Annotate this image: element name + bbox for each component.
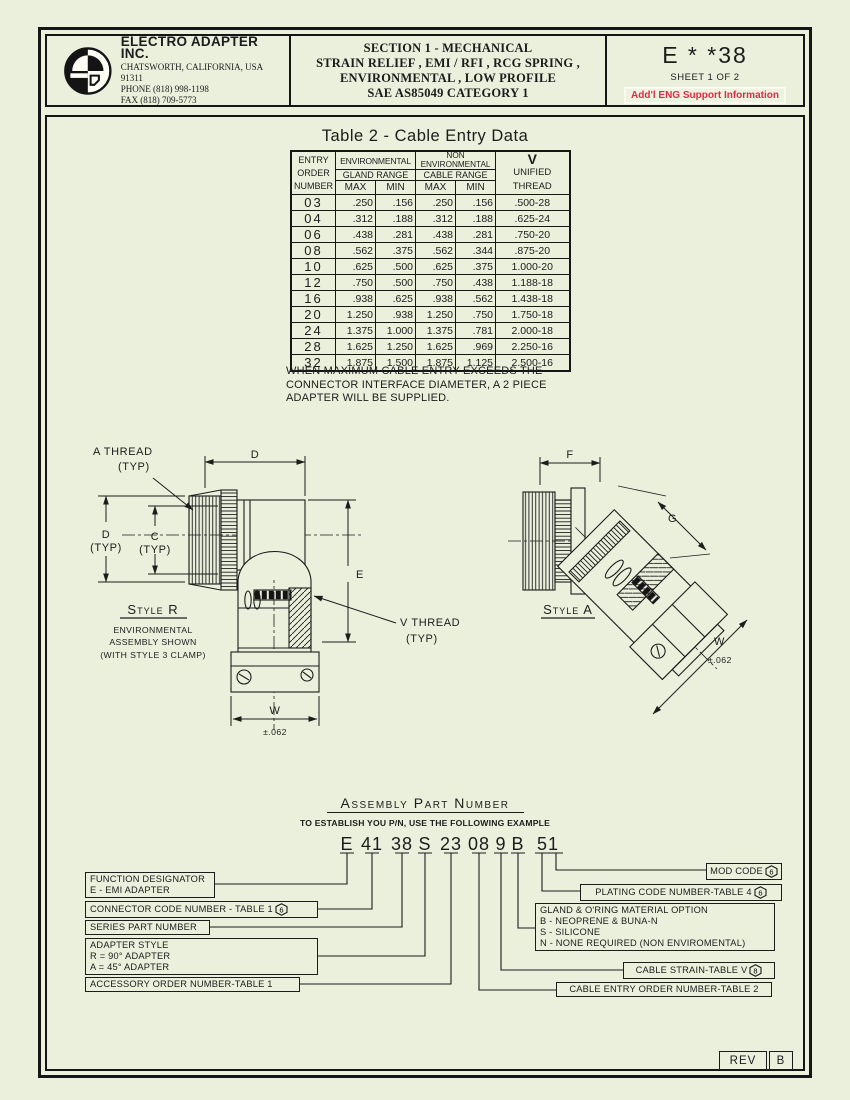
flag-note-icon: 6 (275, 903, 288, 916)
svg-text:±.062: ±.062 (708, 655, 732, 665)
col-header-gland-range: GLAND RANGE (336, 170, 416, 181)
dim-w: W (270, 705, 281, 717)
col-header-entry: ENTRY ORDER NUMBER (291, 151, 336, 195)
col-header-v-thread: V UNIFIED THREAD (496, 151, 570, 195)
table-cell-entry: 16 (291, 291, 336, 307)
doc-id-block: E * *38 SHEET 1 OF 2 Add'l ENG Support I… (607, 36, 803, 105)
table-cell-cmax: 1.625 (416, 339, 456, 355)
svg-text:6: 6 (758, 888, 762, 897)
section-title-line: STRAIN RELIEF , EMI / RFI , RCG SPRING , (316, 56, 580, 71)
table-cell-thread: 1.000-20 (496, 259, 570, 275)
company-phone: PHONE (818) 998-1198 (121, 84, 283, 95)
table-cell-cmin: .438 (456, 275, 496, 291)
callout-cable-entry-order: CABLE ENTRY ORDER NUMBER-TABLE 2 (556, 982, 772, 997)
svg-text:±.062: ±.062 (263, 727, 287, 737)
table-cell-gmin: .625 (376, 291, 416, 307)
table-cell-cmax: .562 (416, 243, 456, 259)
table-cell-thread: 1.438-18 (496, 291, 570, 307)
callout-cable-strain: CABLE STRAIN-TABLE V 8 (623, 962, 775, 979)
table-row: 241.3751.0001.375.7812.000-18 (291, 323, 570, 339)
svg-text:ASSEMBLY SHOWN: ASSEMBLY SHOWN (109, 637, 196, 647)
table-row: 08.562.375.562.344.875-20 (291, 243, 570, 259)
rev-label: REV (719, 1051, 767, 1070)
drawing-sheet-body: Table 2 - Cable Entry Data ENTRY ORDER N… (45, 115, 805, 1071)
doc-code: E * *38 (662, 42, 748, 69)
revision-block: REV B (719, 1051, 793, 1070)
table-cell-entry: 08 (291, 243, 336, 259)
flag-note-icon: 6 (754, 886, 767, 899)
a-thread-label: A THREAD (93, 446, 153, 458)
table-cell-thread: 1.750-18 (496, 307, 570, 323)
datasheet-page: ELECTRO ADAPTER INC. CHATSWORTH, CALIFOR… (0, 0, 850, 1100)
svg-text:6: 6 (279, 905, 283, 914)
table-cell-entry: 28 (291, 339, 336, 355)
callout-series-part-number: SERIES PART NUMBER (85, 920, 210, 935)
table-title: Table 2 - Cable Entry Data (47, 127, 803, 146)
svg-text:(WITH STYLE 3 CLAMP): (WITH STYLE 3 CLAMP) (100, 650, 206, 660)
company-block: ELECTRO ADAPTER INC. CHATSWORTH, CALIFOR… (47, 36, 289, 105)
table-cell-entry: 03 (291, 195, 336, 211)
callout-gland-oring-option: GLAND & O'RING MATERIAL OPTION B - NEOPR… (535, 903, 775, 951)
company-address: CHATSWORTH, CALIFORNIA, USA 91311 (121, 62, 283, 84)
flag-note-icon: 6 (765, 865, 778, 878)
table-cell-gmax: .312 (336, 211, 376, 227)
eng-support-link[interactable]: Add'l ENG Support Information (624, 87, 786, 104)
table-cell-gmax: .750 (336, 275, 376, 291)
table-cell-gmax: .250 (336, 195, 376, 211)
svg-text:(TYP): (TYP) (90, 542, 122, 554)
connector-drawings: A THREAD (TYP) D D (TYP) C (TYP) E V THR… (58, 430, 803, 775)
table-cell-gmax: .562 (336, 243, 376, 259)
table-note: WHEN MAXIMUM CABLE ENTRY EXCEEDS THE CON… (286, 365, 547, 406)
table-row: 10.625.500.625.3751.000-20 (291, 259, 570, 275)
table-row: 04.312.188.312.188.625-24 (291, 211, 570, 227)
table-cell-entry: 20 (291, 307, 336, 323)
callout-adapter-style: ADAPTER STYLE R = 90° ADAPTER A = 45° AD… (85, 938, 318, 975)
company-fax: FAX (818) 709-5773 (121, 95, 283, 106)
table-cell-cmin: .562 (456, 291, 496, 307)
svg-text:ENVIRONMENTAL: ENVIRONMENTAL (113, 625, 192, 635)
table-cell-thread: .500-28 (496, 195, 570, 211)
table-cell-thread: 2.000-18 (496, 323, 570, 339)
table-cell-entry: 04 (291, 211, 336, 227)
svg-text:6: 6 (769, 867, 773, 876)
table-cell-gmax: 1.625 (336, 339, 376, 355)
callout-function-designator: FUNCTION DESIGNATOR E - EMI ADAPTER (85, 872, 215, 898)
table-cell-cmax: 1.250 (416, 307, 456, 323)
table-cell-cmax: .250 (416, 195, 456, 211)
table-row: 12.750.500.750.4381.188-18 (291, 275, 570, 291)
table-cell-gmin: .500 (376, 275, 416, 291)
col-header-min: MIN (376, 181, 416, 195)
table-cell-cmax: .750 (416, 275, 456, 291)
col-header-non-environmental: NON ENVIRONMENTAL (416, 151, 496, 170)
table-row: 281.6251.2501.625.9692.250-16 (291, 339, 570, 355)
col-header-max: MAX (416, 181, 456, 195)
sheet-label: SHEET 1 OF 2 (670, 72, 739, 83)
callout-connector-code: CONNECTOR CODE NUMBER - TABLE 1 6 (85, 901, 318, 918)
table-cell-gmin: .500 (376, 259, 416, 275)
flag-note-icon: 8 (749, 964, 762, 977)
section-title-line: ENVIRONMENTAL , LOW PROFILE (340, 71, 556, 86)
rev-value: B (769, 1051, 793, 1070)
dim-g: G (668, 513, 677, 525)
callout-mod-code: MOD CODE 6 (706, 863, 782, 880)
table-cell-entry: 10 (291, 259, 336, 275)
table-cell-gmin: 1.250 (376, 339, 416, 355)
note-line: ADAPTER WILL BE SUPPLIED. (286, 392, 547, 406)
table-cell-cmax: .625 (416, 259, 456, 275)
callout-accessory-order: ACCESSORY ORDER NUMBER-TABLE 1 (85, 977, 300, 992)
table-cell-cmin: .281 (456, 227, 496, 243)
svg-text:(TYP): (TYP) (139, 544, 171, 556)
table-cell-thread: .625-24 (496, 211, 570, 227)
section-title-line: SECTION 1 - MECHANICAL (364, 41, 533, 56)
table-cell-gmin: .188 (376, 211, 416, 227)
table-cell-gmax: .938 (336, 291, 376, 307)
table-cell-gmax: .438 (336, 227, 376, 243)
table-cell-entry: 12 (291, 275, 336, 291)
dim-c: C (151, 531, 160, 543)
dim-d-top: D (251, 449, 260, 461)
table-cell-cmin: .781 (456, 323, 496, 339)
col-header-environmental: ENVIRONMENTAL (336, 151, 416, 170)
cable-entry-table: ENTRY ORDER NUMBER ENVIRONMENTAL NON ENV… (290, 150, 571, 372)
col-header-min: MIN (456, 181, 496, 195)
svg-text:(TYP): (TYP) (406, 633, 438, 645)
table-cell-cmin: .344 (456, 243, 496, 259)
page-frame: ELECTRO ADAPTER INC. CHATSWORTH, CALIFOR… (38, 27, 812, 1078)
table-cell-cmin: .375 (456, 259, 496, 275)
svg-text:(TYP): (TYP) (118, 461, 150, 473)
table-cell-cmin: .156 (456, 195, 496, 211)
style-a-outline (508, 488, 749, 701)
note-line: WHEN MAXIMUM CABLE ENTRY EXCEEDS THE (286, 365, 547, 379)
title-block: ELECTRO ADAPTER INC. CHATSWORTH, CALIFOR… (45, 34, 805, 107)
table-cell-cmin: .188 (456, 211, 496, 227)
table-row: 06.438.281.438.281.750-20 (291, 227, 570, 243)
table-cell-thread: 2.250-16 (496, 339, 570, 355)
style-r-caption: Style R (127, 602, 178, 617)
table-cell-gmin: .281 (376, 227, 416, 243)
v-thread-label: V THREAD (400, 617, 460, 629)
table-cell-gmin: .375 (376, 243, 416, 259)
table-cell-cmax: .438 (416, 227, 456, 243)
section-title-line: SAE AS85049 CATEGORY 1 (367, 86, 528, 101)
table-cell-gmax: 1.250 (336, 307, 376, 323)
callout-plating-code: PLATING CODE NUMBER-TABLE 4 6 (580, 884, 782, 901)
table-cell-thread: 1.188-18 (496, 275, 570, 291)
table-cell-gmin: .938 (376, 307, 416, 323)
section-title: SECTION 1 - MECHANICAL STRAIN RELIEF , E… (289, 36, 607, 105)
table-cell-thread: .875-20 (496, 243, 570, 259)
table-cell-gmax: 1.375 (336, 323, 376, 339)
col-header-cable-range: CABLE RANGE (416, 170, 496, 181)
dim-f: F (566, 449, 573, 461)
dim-w-a: W (714, 636, 725, 648)
col-header-max: MAX (336, 181, 376, 195)
table-cell-gmin: .156 (376, 195, 416, 211)
assembly-subtitle: TO ESTABLISH YOU P/N, USE THE FOLLOWING … (47, 818, 803, 828)
table-cell-cmax: .312 (416, 211, 456, 227)
dim-d-left: D (102, 529, 111, 541)
assembly-title: Assembly Part Number (47, 795, 803, 813)
table-cell-cmin: .750 (456, 307, 496, 323)
note-line: CONNECTOR INTERFACE DIAMETER, A 2 PIECE (286, 379, 547, 393)
table-cell-entry: 06 (291, 227, 336, 243)
table-row: 201.250.9381.250.7501.750-18 (291, 307, 570, 323)
table-cell-cmax: 1.375 (416, 323, 456, 339)
table-cell-gmax: .625 (336, 259, 376, 275)
table-cell-cmin: .969 (456, 339, 496, 355)
table-cell-cmax: .938 (416, 291, 456, 307)
table-row: 03.250.156.250.156.500-28 (291, 195, 570, 211)
table-row: 16.938.625.938.5621.438-18 (291, 291, 570, 307)
style-a-caption: Style A (543, 602, 593, 617)
dim-e: E (356, 569, 364, 581)
table-cell-gmin: 1.000 (376, 323, 416, 339)
svg-text:8: 8 (754, 966, 758, 975)
table-cell-thread: .750-20 (496, 227, 570, 243)
company-logo-icon (63, 45, 113, 97)
company-name: ELECTRO ADAPTER INC. (121, 36, 283, 60)
table-cell-entry: 24 (291, 323, 336, 339)
